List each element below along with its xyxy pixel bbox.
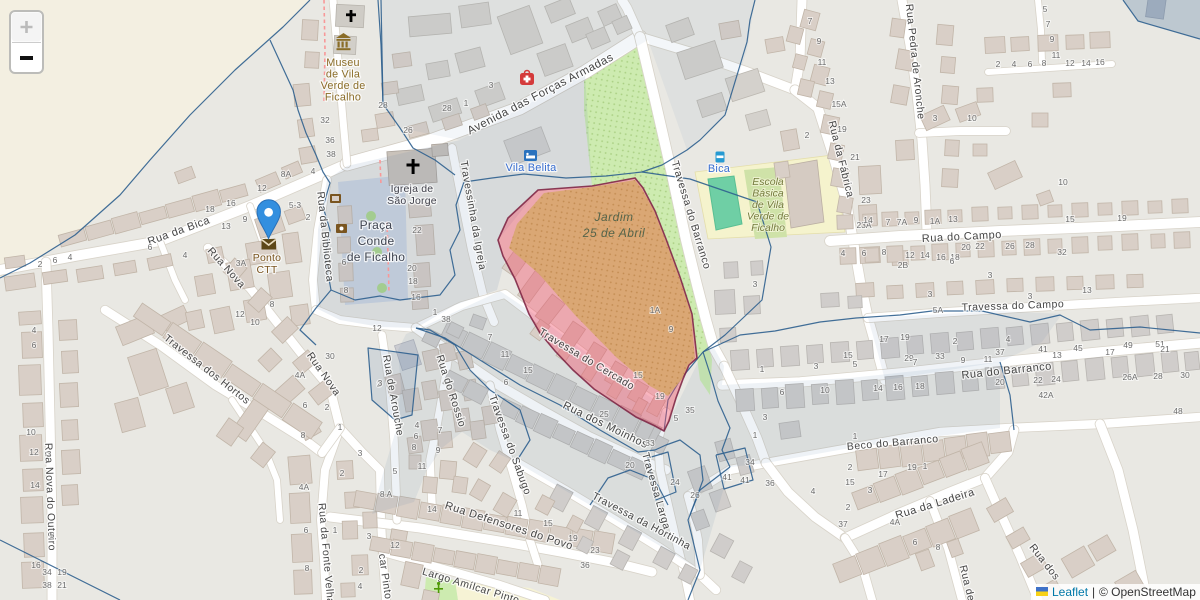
- svg-text:1A: 1A: [930, 216, 941, 226]
- svg-text:4: 4: [311, 166, 316, 176]
- svg-text:14: 14: [1081, 58, 1091, 68]
- svg-text:24: 24: [1051, 374, 1061, 384]
- svg-text:6: 6: [950, 256, 955, 266]
- svg-text:15A: 15A: [831, 99, 846, 109]
- svg-text:7: 7: [886, 217, 891, 227]
- svg-text:1: 1: [464, 98, 469, 108]
- svg-text:4: 4: [415, 420, 420, 430]
- svg-text:6: 6: [1028, 59, 1033, 69]
- svg-text:2B: 2B: [898, 260, 909, 270]
- svg-text:6: 6: [342, 257, 347, 267]
- svg-text:8: 8: [1042, 58, 1047, 68]
- svg-text:1: 1: [333, 525, 338, 535]
- svg-text:24: 24: [670, 477, 680, 487]
- svg-text:19: 19: [655, 391, 665, 401]
- svg-text:Museu: Museu: [326, 57, 359, 69]
- svg-text:17: 17: [878, 469, 888, 479]
- svg-text:17: 17: [879, 334, 889, 344]
- svg-text:16: 16: [31, 560, 41, 570]
- svg-text:15: 15: [1065, 214, 1075, 224]
- svg-text:3: 3: [988, 270, 993, 280]
- svg-text:10: 10: [1058, 177, 1068, 187]
- svg-text:6: 6: [53, 255, 58, 265]
- svg-text:37: 37: [838, 519, 848, 529]
- svg-text:36: 36: [580, 560, 590, 570]
- svg-text:28: 28: [1025, 240, 1035, 250]
- svg-text:4: 4: [1006, 334, 1011, 344]
- svg-text:2: 2: [848, 462, 853, 472]
- svg-text:3: 3: [933, 113, 938, 123]
- svg-text:11: 11: [514, 508, 523, 518]
- svg-text:12: 12: [905, 250, 915, 260]
- svg-text:15: 15: [523, 365, 533, 375]
- svg-text:36: 36: [765, 478, 775, 488]
- svg-text:2: 2: [325, 402, 330, 412]
- svg-text:Básica: Básica: [752, 188, 784, 200]
- svg-text:9: 9: [914, 215, 919, 225]
- svg-text:19: 19: [1117, 213, 1127, 223]
- svg-text:13: 13: [1082, 285, 1092, 295]
- svg-text:49: 49: [1123, 340, 1133, 350]
- svg-text:35: 35: [685, 405, 695, 415]
- svg-text:13: 13: [221, 221, 231, 231]
- svg-text:6: 6: [504, 377, 509, 387]
- svg-text:6: 6: [303, 400, 308, 410]
- svg-text:Bica: Bica: [708, 163, 731, 175]
- svg-text:11: 11: [501, 349, 510, 359]
- svg-text:6: 6: [32, 340, 37, 350]
- svg-text:6: 6: [862, 248, 867, 258]
- svg-text:6: 6: [913, 537, 918, 547]
- svg-text:3: 3: [378, 378, 383, 388]
- svg-text:2: 2: [953, 336, 958, 346]
- svg-text:2: 2: [359, 565, 364, 575]
- svg-text:3: 3: [763, 412, 768, 422]
- svg-text:2: 2: [996, 59, 1001, 69]
- svg-text:3A: 3A: [236, 258, 247, 268]
- svg-text:4: 4: [811, 486, 816, 496]
- svg-text:25: 25: [599, 409, 609, 419]
- svg-text:8 A: 8 A: [380, 489, 393, 499]
- svg-text:5: 5: [393, 466, 398, 476]
- svg-text:14: 14: [30, 480, 40, 490]
- svg-text:30: 30: [1180, 370, 1190, 380]
- svg-text:8A: 8A: [281, 169, 292, 179]
- svg-text:20: 20: [961, 242, 971, 252]
- svg-text:de Vila: de Vila: [752, 199, 784, 211]
- svg-text:15: 15: [843, 350, 853, 360]
- svg-text:25 de Abril: 25 de Abril: [582, 226, 645, 240]
- svg-text:3: 3: [928, 289, 933, 299]
- svg-text:4A: 4A: [890, 517, 901, 527]
- svg-text:4A: 4A: [295, 370, 306, 380]
- svg-text:26: 26: [403, 125, 413, 135]
- svg-text:8: 8: [412, 442, 417, 452]
- svg-text:22: 22: [412, 225, 422, 235]
- svg-text:1: 1: [760, 364, 765, 374]
- svg-text:23: 23: [861, 195, 871, 205]
- svg-text:9: 9: [817, 36, 822, 46]
- svg-text:4: 4: [1012, 59, 1017, 69]
- svg-text:11: 11: [984, 354, 993, 364]
- svg-text:19: 19: [57, 567, 67, 577]
- svg-text:32: 32: [320, 115, 330, 125]
- svg-text:3: 3: [814, 361, 819, 371]
- svg-text:18: 18: [408, 276, 418, 286]
- svg-text:1: 1: [338, 422, 343, 432]
- svg-text:41: 41: [1038, 344, 1048, 354]
- svg-text:2: 2: [38, 259, 43, 269]
- svg-text:8: 8: [305, 563, 310, 573]
- svg-text:37: 37: [995, 347, 1005, 357]
- svg-text:Vila Belita: Vila Belita: [506, 162, 558, 174]
- svg-text:6: 6: [780, 387, 785, 397]
- svg-text:9: 9: [961, 355, 966, 365]
- svg-text:34: 34: [42, 567, 52, 577]
- svg-text:1: 1: [853, 431, 858, 441]
- svg-text:15: 15: [543, 518, 553, 528]
- svg-text:3: 3: [868, 485, 873, 495]
- svg-text:11: 11: [418, 461, 427, 471]
- svg-text:8: 8: [270, 299, 275, 309]
- svg-text:6: 6: [414, 431, 419, 441]
- svg-text:1: 1: [753, 430, 758, 440]
- svg-text:34: 34: [745, 457, 755, 467]
- svg-text:19: 19: [907, 462, 917, 472]
- svg-text:Verde de: Verde de: [321, 80, 366, 92]
- svg-text:23: 23: [590, 545, 600, 555]
- svg-text:14: 14: [873, 383, 883, 393]
- svg-text:Escola: Escola: [752, 176, 784, 188]
- svg-text:4: 4: [841, 248, 846, 258]
- svg-text:6: 6: [304, 525, 309, 535]
- svg-text:21: 21: [850, 152, 860, 162]
- svg-text:4: 4: [32, 325, 37, 335]
- svg-text:16: 16: [1095, 57, 1105, 67]
- svg-text:Ficalho: Ficalho: [751, 222, 785, 234]
- svg-text:20: 20: [407, 263, 417, 273]
- svg-text:45: 45: [1073, 343, 1083, 353]
- svg-text:9: 9: [243, 214, 248, 224]
- svg-text:16: 16: [411, 292, 421, 302]
- svg-text:4: 4: [358, 581, 363, 591]
- svg-text:2: 2: [846, 502, 851, 512]
- svg-text:41: 41: [740, 475, 750, 485]
- svg-text:5: 5: [674, 413, 679, 423]
- svg-text:21: 21: [57, 580, 67, 590]
- svg-text:© OpenStreetMap: © OpenStreetMap: [1099, 585, 1196, 599]
- svg-text:de Vila: de Vila: [326, 69, 360, 81]
- svg-text:9: 9: [669, 324, 674, 334]
- svg-text:15: 15: [633, 370, 643, 380]
- svg-text:10: 10: [26, 427, 36, 437]
- svg-text:12: 12: [235, 309, 245, 319]
- svg-text:28: 28: [378, 100, 388, 110]
- svg-text:Leaflet: Leaflet: [1052, 585, 1089, 599]
- svg-text:16: 16: [226, 198, 236, 208]
- svg-text:9: 9: [1050, 34, 1055, 44]
- svg-text:5A: 5A: [933, 305, 944, 315]
- svg-text:19: 19: [568, 533, 578, 543]
- svg-text:CTT: CTT: [256, 264, 277, 276]
- svg-text:36: 36: [325, 135, 335, 145]
- svg-text:12: 12: [1065, 58, 1075, 68]
- svg-text:5: 5: [853, 359, 858, 369]
- svg-text:3: 3: [47, 449, 52, 459]
- svg-text:20: 20: [625, 460, 635, 470]
- svg-text:11: 11: [1052, 50, 1061, 60]
- svg-text:26A: 26A: [1122, 372, 1137, 382]
- svg-text:13: 13: [1052, 350, 1062, 360]
- svg-text:14: 14: [863, 215, 873, 225]
- svg-text:19: 19: [900, 332, 910, 342]
- svg-text:Ponto: Ponto: [253, 252, 281, 264]
- svg-text:12: 12: [257, 183, 267, 193]
- svg-text:1: 1: [923, 461, 928, 471]
- svg-text:4: 4: [68, 252, 73, 262]
- svg-text:7A: 7A: [897, 217, 908, 227]
- svg-text:2: 2: [340, 468, 345, 478]
- svg-text:14: 14: [920, 250, 930, 260]
- svg-text:5: 5: [1043, 4, 1048, 14]
- svg-text:8: 8: [882, 247, 887, 257]
- svg-text:22: 22: [975, 241, 985, 251]
- svg-text:São Jorge: São Jorge: [387, 195, 437, 207]
- svg-text:Ficalho: Ficalho: [325, 92, 361, 104]
- svg-text:12: 12: [29, 447, 39, 457]
- svg-text:26: 26: [690, 490, 700, 500]
- svg-text:5: 5: [50, 530, 55, 540]
- svg-text:de Ficalho: de Ficalho: [347, 250, 405, 264]
- svg-text:14: 14: [427, 504, 437, 514]
- svg-text:Igreja de: Igreja de: [391, 183, 434, 195]
- svg-text:11: 11: [818, 57, 827, 67]
- svg-text:2: 2: [306, 212, 311, 222]
- svg-text:8: 8: [344, 285, 349, 295]
- svg-text:3: 3: [358, 448, 363, 458]
- svg-text:20: 20: [995, 377, 1005, 387]
- svg-text:13: 13: [825, 76, 835, 86]
- svg-text:28: 28: [442, 103, 452, 113]
- svg-text:18: 18: [915, 381, 925, 391]
- svg-text:38: 38: [42, 580, 52, 590]
- svg-text:2: 2: [805, 130, 810, 140]
- svg-text:32: 32: [1057, 247, 1067, 257]
- svg-text:15: 15: [845, 477, 855, 487]
- svg-text:3: 3: [489, 80, 494, 90]
- svg-text:12: 12: [390, 540, 400, 550]
- svg-text:Conde: Conde: [358, 234, 395, 248]
- svg-text:8: 8: [301, 430, 306, 440]
- svg-text:7: 7: [913, 357, 918, 367]
- svg-text:19: 19: [837, 124, 847, 134]
- svg-text:38: 38: [326, 149, 336, 159]
- svg-text:12: 12: [372, 323, 382, 333]
- svg-text:1A: 1A: [650, 305, 661, 315]
- svg-text:33: 33: [645, 438, 655, 448]
- svg-text:16: 16: [936, 252, 946, 262]
- svg-text:42A: 42A: [1038, 390, 1053, 400]
- svg-text:28: 28: [1153, 371, 1163, 381]
- svg-text:22: 22: [1033, 375, 1043, 385]
- svg-text:13: 13: [948, 214, 958, 224]
- svg-text:3: 3: [367, 531, 372, 541]
- svg-text:41: 41: [722, 472, 732, 482]
- svg-text:Praça: Praça: [360, 218, 393, 232]
- svg-text:30: 30: [325, 351, 335, 361]
- svg-text:Jardim: Jardim: [593, 210, 633, 224]
- svg-text:7: 7: [488, 332, 493, 342]
- svg-text:Verde de: Verde de: [747, 211, 789, 223]
- svg-text:18: 18: [205, 204, 215, 214]
- svg-text:48: 48: [1173, 406, 1183, 416]
- svg-text:3: 3: [1028, 291, 1033, 301]
- svg-text:33: 33: [935, 351, 945, 361]
- svg-text:7: 7: [438, 425, 443, 435]
- svg-text:21: 21: [1160, 344, 1170, 354]
- svg-text:5-3: 5-3: [289, 200, 302, 210]
- svg-text:6: 6: [148, 242, 153, 252]
- svg-text:4: 4: [183, 250, 188, 260]
- svg-text:1: 1: [433, 307, 438, 317]
- svg-text:8: 8: [936, 542, 941, 552]
- svg-text:17: 17: [1105, 347, 1115, 357]
- svg-text:7: 7: [808, 16, 813, 26]
- svg-text:10: 10: [250, 317, 260, 327]
- svg-text:10: 10: [967, 113, 977, 123]
- svg-text:10: 10: [820, 385, 830, 395]
- svg-text:26: 26: [1005, 241, 1015, 251]
- svg-text:38: 38: [441, 314, 451, 324]
- svg-text:4A: 4A: [299, 482, 310, 492]
- svg-text:7: 7: [1046, 19, 1051, 29]
- svg-text:16: 16: [893, 382, 903, 392]
- svg-text:9: 9: [436, 445, 441, 455]
- svg-text:|: |: [1092, 585, 1095, 599]
- svg-text:3: 3: [753, 279, 758, 289]
